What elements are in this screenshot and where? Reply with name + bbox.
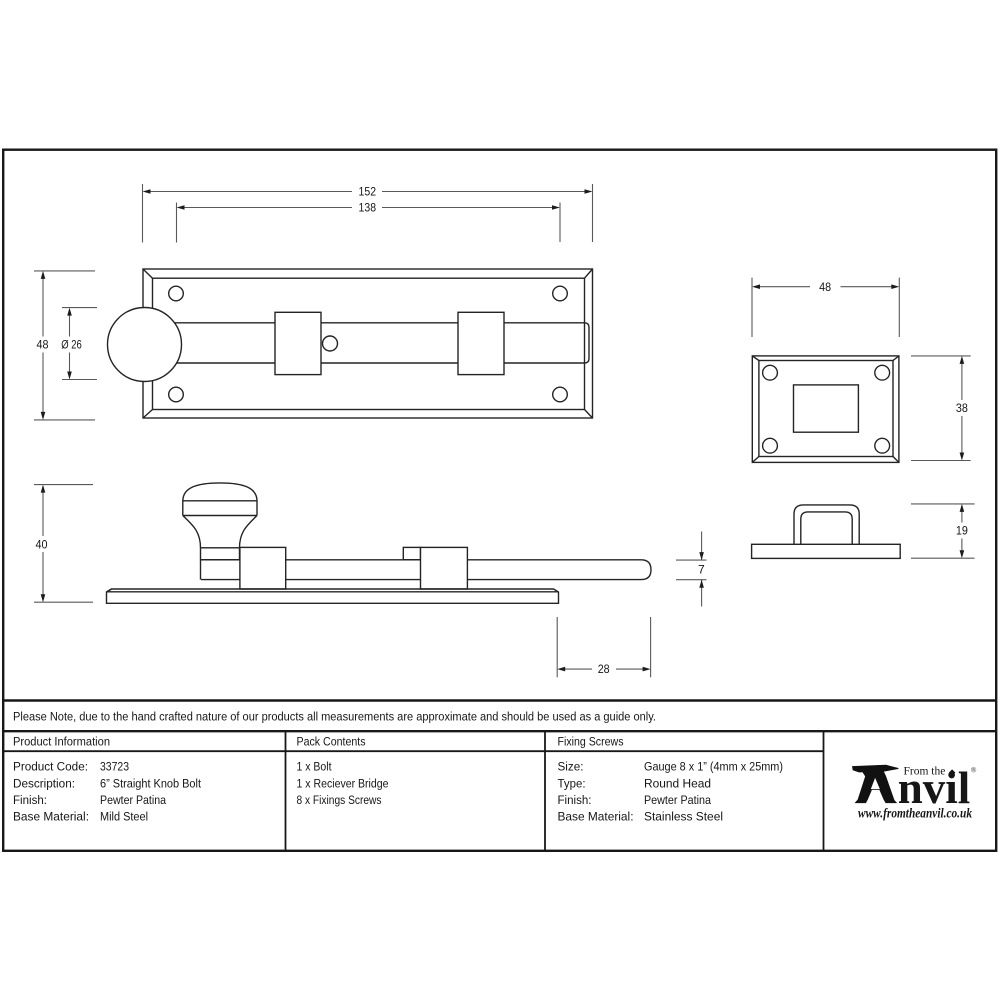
svg-text:Finish:: Finish:: [13, 793, 47, 807]
svg-text:®: ®: [971, 765, 977, 774]
svg-text:Description:: Description:: [13, 776, 75, 790]
svg-text:7: 7: [698, 563, 705, 577]
svg-text:19: 19: [956, 524, 968, 538]
svg-text:Stainless Steel: Stainless Steel: [644, 809, 723, 823]
svg-text:152: 152: [359, 185, 377, 199]
svg-text:8 x Fixings Screws: 8 x Fixings Screws: [297, 793, 382, 807]
svg-text:33723: 33723: [100, 760, 129, 774]
svg-text:Base Material:: Base Material:: [13, 809, 89, 823]
svg-text:Fixing Screws: Fixing Screws: [558, 735, 624, 749]
svg-text:Size:: Size:: [558, 760, 584, 774]
svg-text:Base Material:: Base Material:: [558, 809, 634, 823]
svg-text:Please Note, due to the hand c: Please Note, due to the hand crafted nat…: [13, 709, 656, 723]
svg-text:Round Head: Round Head: [644, 776, 711, 790]
svg-text:Product Information: Product Information: [13, 735, 110, 749]
svg-text:Pewter Patina: Pewter Patina: [100, 793, 166, 807]
svg-text:1 x Bolt: 1 x Bolt: [297, 760, 333, 774]
svg-text:Gauge 8 x 1” (4mm x 25mm): Gauge 8 x 1” (4mm x 25mm): [644, 760, 783, 774]
svg-text:Mild Steel: Mild Steel: [100, 809, 148, 823]
svg-text:6” Straight Knob Bolt: 6” Straight Knob Bolt: [100, 776, 202, 790]
svg-text:138: 138: [359, 201, 377, 215]
svg-text:Finish:: Finish:: [558, 793, 592, 807]
svg-text:28: 28: [598, 662, 610, 676]
svg-text:Type:: Type:: [558, 776, 586, 790]
svg-text:www.fromtheanvil.co.uk: www.fromtheanvil.co.uk: [858, 805, 972, 820]
svg-text:48: 48: [37, 338, 49, 352]
svg-text:48: 48: [819, 280, 831, 294]
svg-text:Product Code:: Product Code:: [13, 760, 88, 774]
svg-text:Pack Contents: Pack Contents: [297, 735, 366, 749]
svg-text:1 x Reciever Bridge: 1 x Reciever Bridge: [297, 776, 389, 790]
svg-text:38: 38: [956, 401, 968, 415]
svg-text:Pewter Patina: Pewter Patina: [644, 793, 711, 807]
svg-text:40: 40: [36, 538, 48, 552]
svg-text:Ø 26: Ø 26: [61, 338, 82, 352]
